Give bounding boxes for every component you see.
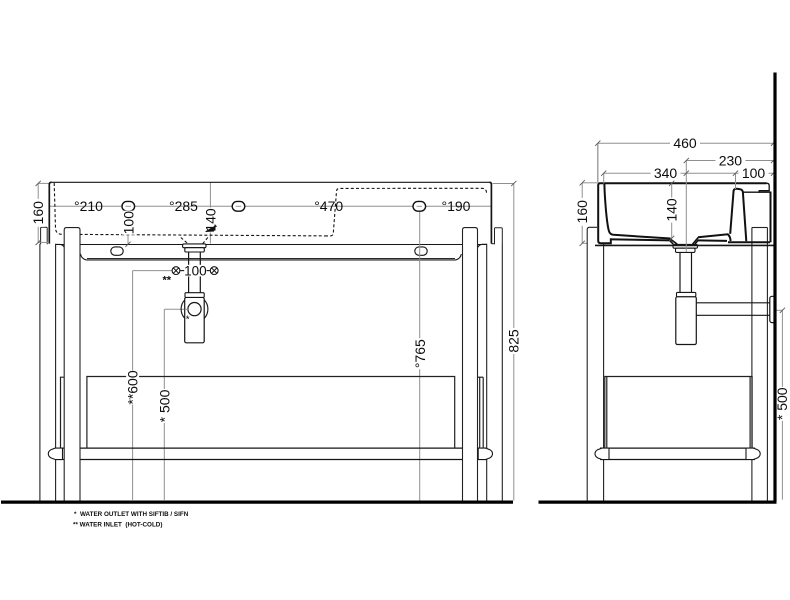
svg-text:°190: °190 (442, 198, 471, 214)
svg-text:100: 100 (742, 165, 766, 181)
svg-text:°210: °210 (74, 198, 103, 214)
svg-text:230: 230 (719, 152, 743, 168)
svg-text:* 500: * 500 (157, 389, 173, 422)
svg-text:** WATER INLET (HOT-COLD): ** WATER INLET (HOT-COLD) (73, 521, 162, 528)
svg-text:*: * (186, 315, 190, 326)
svg-text:°470: °470 (314, 198, 343, 214)
svg-text:**600: **600 (125, 370, 141, 404)
svg-text:460: 460 (673, 135, 697, 151)
svg-text:°765: °765 (412, 339, 428, 368)
svg-text:100: 100 (121, 211, 137, 235)
svg-text:**: ** (163, 275, 172, 287)
svg-text:825: 825 (505, 329, 521, 353)
svg-text:°285: °285 (169, 198, 198, 214)
svg-text:100: 100 (184, 263, 207, 278)
svg-text:340: 340 (654, 165, 678, 181)
svg-text:140: 140 (664, 198, 680, 222)
svg-text:160: 160 (30, 201, 46, 225)
svg-text:* WATER OUTLET WITH SIFTIB /: * WATER OUTLET WITH SIFTIB / SIFN (74, 511, 189, 518)
svg-text:160: 160 (574, 200, 590, 224)
